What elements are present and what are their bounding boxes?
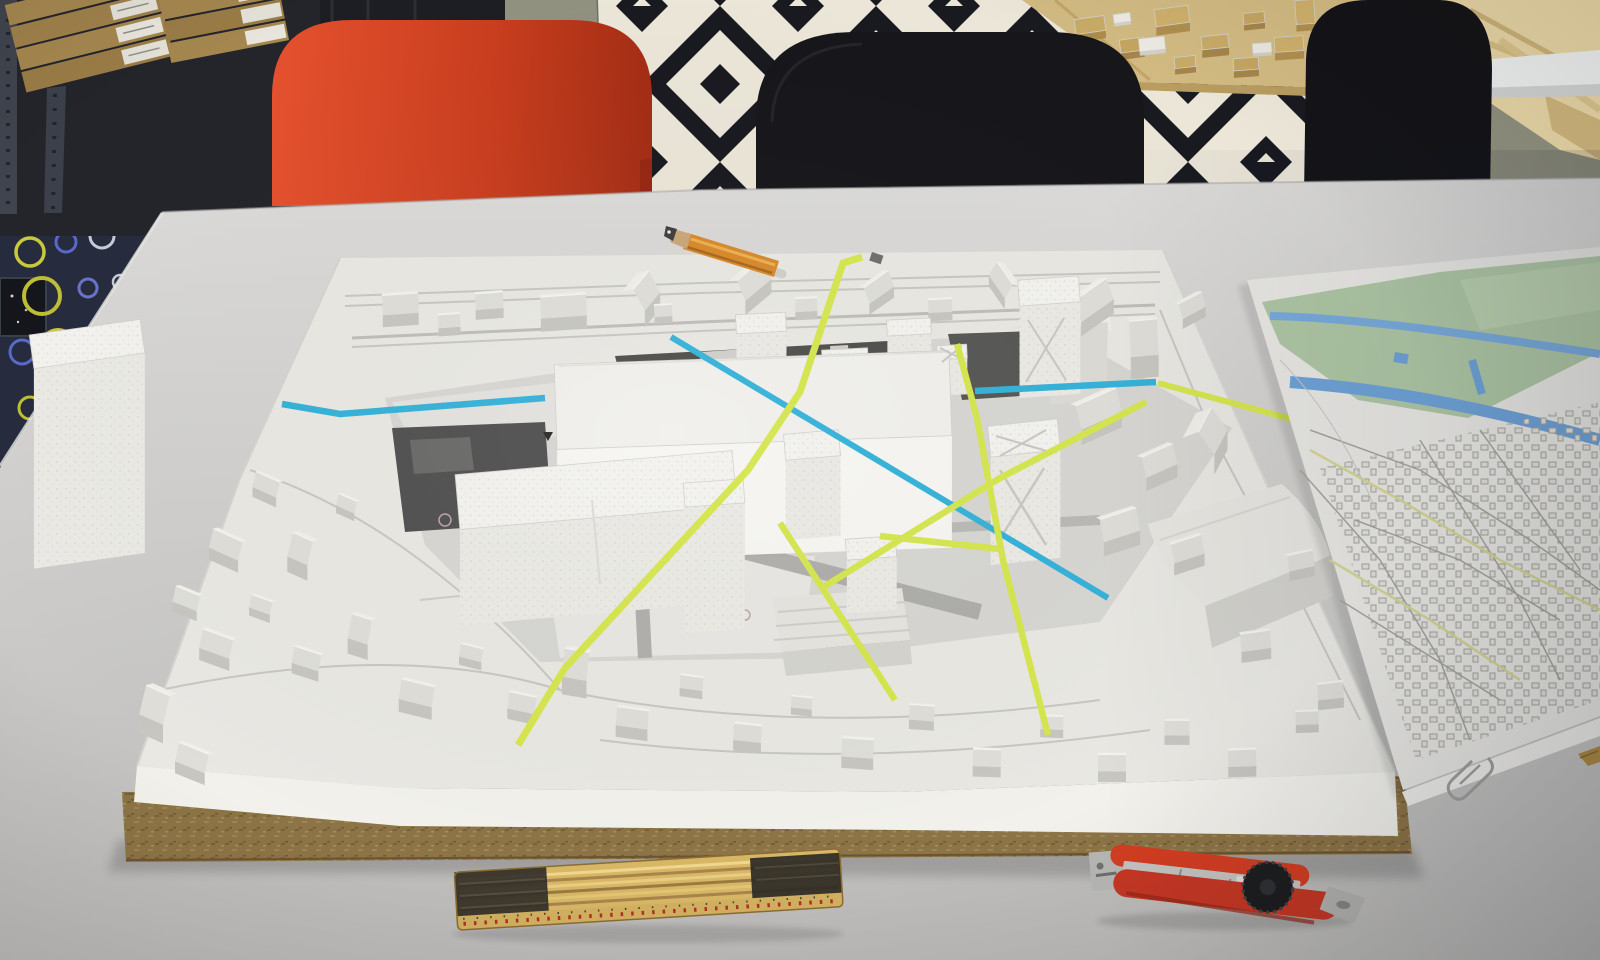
- lighting-overlays: [0, 0, 1600, 960]
- photo-architectural-model-scene: [0, 0, 1600, 960]
- scene-canvas: [0, 0, 1600, 960]
